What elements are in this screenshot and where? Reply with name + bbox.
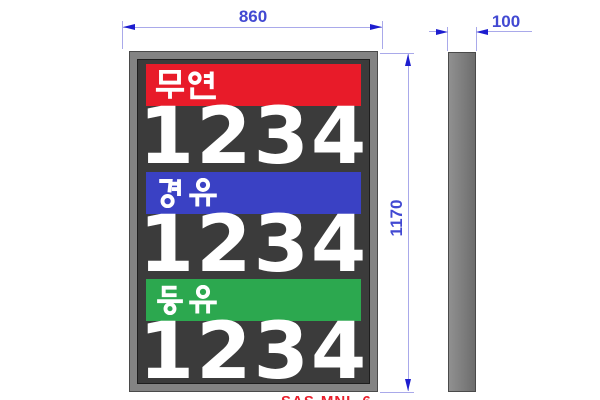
height-dimension-label: 1170: [387, 189, 407, 247]
clipped-model-label: SAS-MNL-6: [281, 393, 372, 400]
depth-dimension-label: 100: [480, 12, 532, 32]
depth-dim-tail-left: [429, 31, 436, 32]
height-dim-line: [408, 54, 409, 391]
width-dim-ext-line-right: [382, 21, 383, 49]
height-dim-arrow-bottom-icon: [405, 379, 411, 391]
price-display-unleaded: 1234: [136, 106, 372, 168]
width-dim-line: [123, 27, 382, 28]
width-dimension-label: 860: [220, 7, 286, 27]
side-view-panel: [448, 52, 476, 392]
price-display-area: 무연 1234 경유: [137, 59, 370, 384]
width-dim-arrow-right-icon: [370, 24, 382, 30]
price-display-diesel: 1234: [136, 214, 372, 276]
height-dim-arrow-top-icon: [405, 54, 411, 66]
width-dim-arrow-left-icon: [123, 24, 135, 30]
height-dim-ext-line-bottom: [380, 392, 414, 393]
price-display-kerosene: 1234: [136, 321, 372, 383]
depth-dim-arrow-left-icon: [436, 29, 448, 35]
technical-drawing-canvas: 무연 1234 경유: [0, 0, 600, 400]
front-view-panel: 무연 1234 경유: [129, 51, 378, 392]
